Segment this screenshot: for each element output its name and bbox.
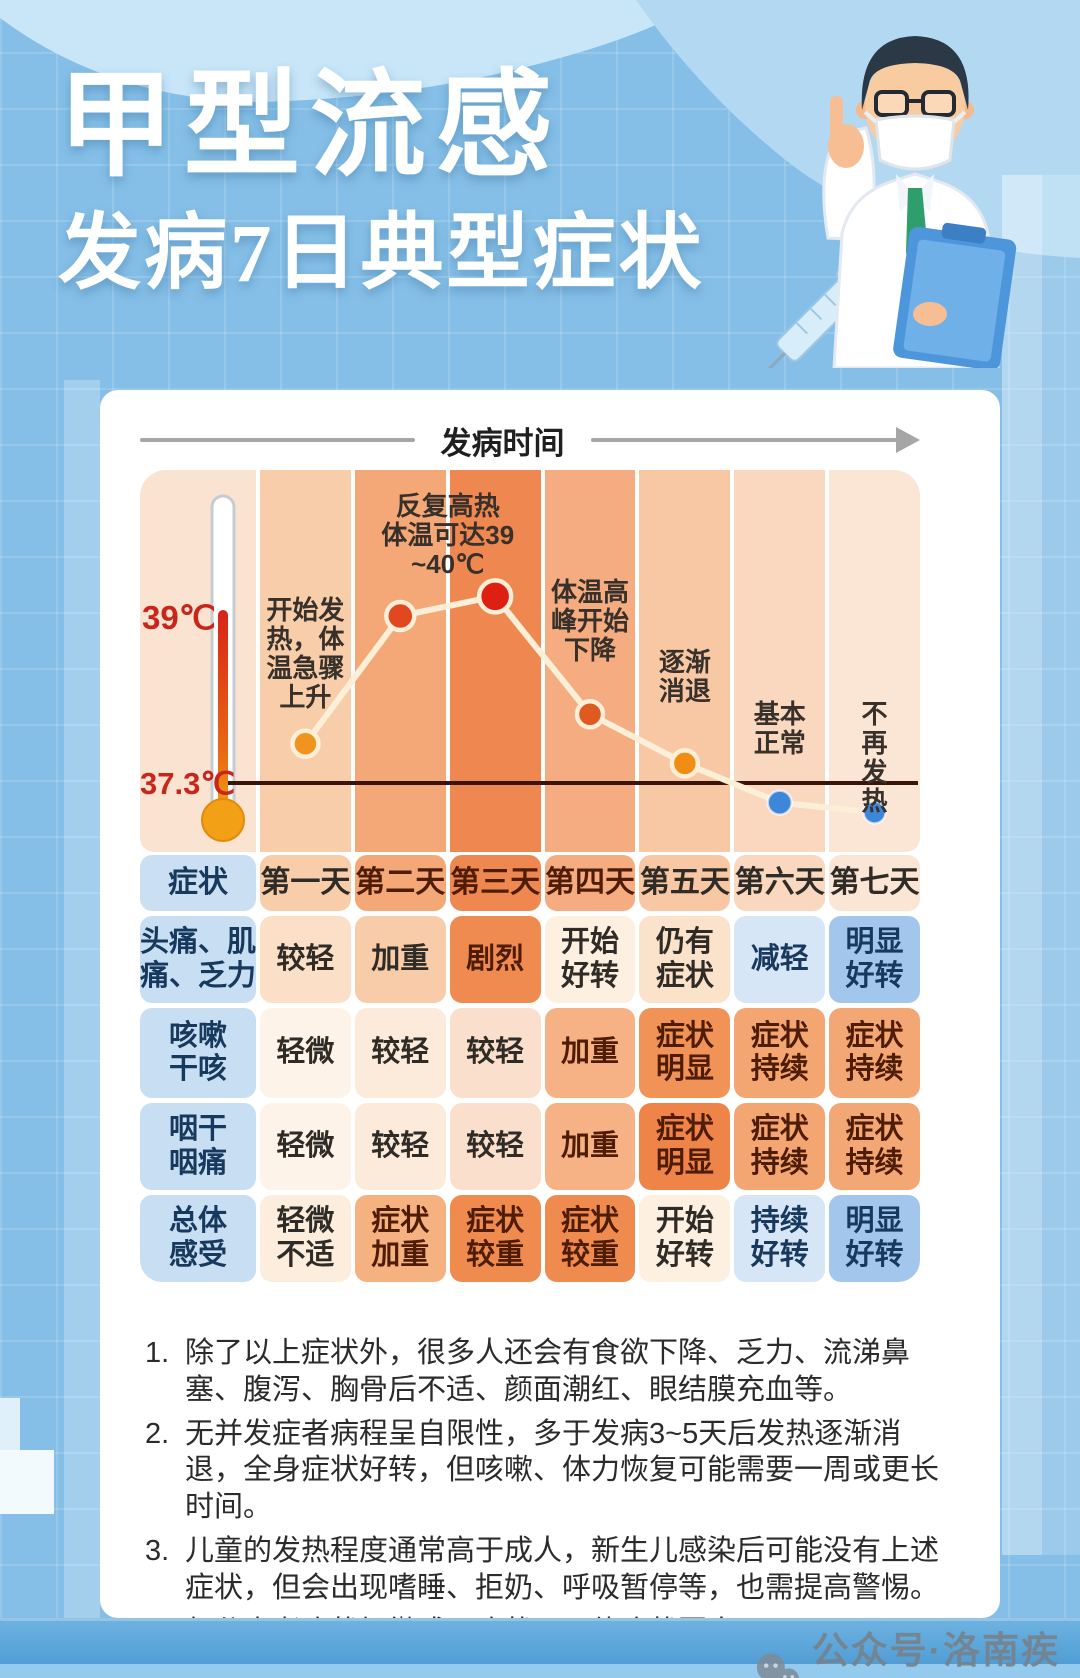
chart-annotation-day-5: 逐渐 消退 <box>659 648 711 706</box>
fever-chart: 开始发 热，体 温急骤 上升反复高热 体温可达39 ~40℃体温高 峰开始 下降… <box>140 470 920 852</box>
symptom-table: 症状第一天第二天第三天第四天第五天第六天第七天头痛、肌 痛、乏力较轻加重剧烈开始… <box>140 855 920 1282</box>
table-cell: 持续 好转 <box>734 1195 825 1282</box>
table-row-label: 总体 感受 <box>140 1195 256 1282</box>
temperature-point-day-4 <box>577 701 603 727</box>
corner-step-decor <box>0 1398 20 1456</box>
footnote-2: 2.无并发症者病程呈自限性，多于发病3~5天后发热逐渐消退，全身症状好转，但咳嗽… <box>145 1416 957 1526</box>
chart-annotation-day-6: 基本 正常 <box>754 700 806 758</box>
left-accent-band <box>64 380 100 1618</box>
timeline-line-right <box>591 438 898 442</box>
table-cell: 症状 持续 <box>734 1103 825 1190</box>
wechat-icon <box>755 1651 802 1678</box>
content-card: 发病时间 <box>100 390 1000 1618</box>
table-cell: 加重 <box>355 916 446 1003</box>
table-cell: 症状 持续 <box>829 1103 920 1190</box>
watermark-text: 公众号·洛南疾控 <box>812 1620 1080 1678</box>
table-header-symptom: 症状 <box>140 855 256 911</box>
influenza-infographic-page: 甲型流感 发病7日典型症状 <box>0 0 1080 1678</box>
footnotes: 1.除了以上症状外，很多人还会有食欲下降、乏力、流涕鼻塞、腹泻、胸骨后不适、颜面… <box>145 1335 957 1658</box>
title-line-2: 发病7日典型症状 <box>58 208 705 299</box>
footnote-text: 无并发症者病程呈自限性，多于发病3~5天后发热逐渐消退，全身症状好转，但咳嗽、体… <box>185 1416 957 1526</box>
table-row-label: 咳嗽 干咳 <box>140 1008 256 1098</box>
footnote-number: 3. <box>145 1533 185 1607</box>
table-header-day-2: 第二天 <box>355 855 446 911</box>
table-cell: 明显 好转 <box>829 916 920 1003</box>
chart-annotation-day-1: 开始发 热，体 温急骤 上升 <box>266 596 344 712</box>
temperature-point-day-3 <box>479 580 511 612</box>
normal-temp-label: 37.3℃ <box>140 766 235 802</box>
table-cell: 加重 <box>545 1008 636 1098</box>
table-header-day-6: 第六天 <box>734 855 825 911</box>
footnote-text: 儿童的发热程度通常高于成人，新生儿感染后可能没有上述症状，但会出现嗜睡、拒奶、呼… <box>185 1533 957 1607</box>
doctor-illustration <box>758 8 1080 368</box>
table-cell: 症状 明显 <box>639 1008 730 1098</box>
clipboard-icon <box>892 218 1018 368</box>
corner-step-decor <box>0 1450 54 1514</box>
temperature-point-day-6 <box>768 791 792 815</box>
table-cell: 症状 明显 <box>639 1103 730 1190</box>
table-cell: 仍有 症状 <box>639 916 730 1003</box>
chart-annotation-day-4: 体温高 峰开始 下降 <box>551 578 629 665</box>
table-cell: 症状 持续 <box>734 1008 825 1098</box>
table-cell: 减轻 <box>734 916 825 1003</box>
temperature-point-day-2 <box>386 602 414 630</box>
footnote-3: 3.儿童的发热程度通常高于成人，新生儿感染后可能没有上述症状，但会出现嗜睡、拒奶… <box>145 1533 957 1607</box>
table-header-day-1: 第一天 <box>260 855 351 911</box>
right-accent-band-inner <box>1002 175 1042 1555</box>
timeline-header: 发病时间 <box>140 420 920 460</box>
table-header-day-4: 第四天 <box>545 855 636 911</box>
footnote-number: 1. <box>145 1335 185 1409</box>
page-title: 甲型流感 发病7日典型症状 <box>58 64 705 299</box>
footnote-text: 除了以上症状外，很多人还会有食欲下降、乏力、流涕鼻塞、腹泻、胸骨后不适、颜面潮红… <box>185 1335 957 1409</box>
table-cell: 较轻 <box>260 916 351 1003</box>
holding-hand <box>913 302 947 326</box>
footnote-number: 2. <box>145 1416 185 1526</box>
arrow-right-icon <box>896 427 920 453</box>
watermark: 公众号·洛南疾控 <box>755 1620 1080 1678</box>
table-cell: 加重 <box>545 1103 636 1190</box>
table-header-day-5: 第五天 <box>639 855 730 911</box>
table-row-label: 头痛、肌 痛、乏力 <box>140 916 256 1003</box>
table-header-day-7: 第七天 <box>829 855 920 911</box>
fever-curve-svg <box>140 470 920 852</box>
chart-annotation-day-7: 不再 发热 <box>852 700 897 816</box>
high-temp-label: 39℃ <box>142 598 216 637</box>
table-cell: 症状 加重 <box>355 1195 446 1282</box>
table-cell: 较轻 <box>355 1008 446 1098</box>
table-cell: 开始 好转 <box>545 916 636 1003</box>
doctor-head <box>856 36 974 169</box>
table-cell: 剧烈 <box>450 916 541 1003</box>
face-mask-icon <box>865 112 965 169</box>
table-cell: 较轻 <box>450 1103 541 1190</box>
table-row-label: 咽干 咽痛 <box>140 1103 256 1190</box>
table-cell: 明显 好转 <box>829 1195 920 1282</box>
timeline-label: 发病时间 <box>415 418 591 463</box>
temperature-point-day-5 <box>672 750 698 776</box>
title-line-1: 甲型流感 <box>58 64 705 192</box>
table-cell: 轻微 不适 <box>260 1195 351 1282</box>
table-cell: 症状 较重 <box>545 1195 636 1282</box>
table-cell: 开始 好转 <box>639 1195 730 1282</box>
table-cell: 较轻 <box>355 1103 446 1190</box>
temperature-point-day-1 <box>292 731 318 757</box>
table-cell: 症状 持续 <box>829 1008 920 1098</box>
table-cell: 症状 较重 <box>450 1195 541 1282</box>
table-cell: 轻微 <box>260 1008 351 1098</box>
doctor-body <box>834 174 1018 368</box>
table-header-day-3: 第三天 <box>450 855 541 911</box>
table-cell: 轻微 <box>260 1103 351 1190</box>
chart-annotation-day-2.5: 反复高热 体温可达39 ~40℃ <box>381 492 514 579</box>
footnote-1: 1.除了以上症状外，很多人还会有食欲下降、乏力、流涕鼻塞、腹泻、胸骨后不适、颜面… <box>145 1335 957 1409</box>
timeline-line-left <box>140 438 415 442</box>
table-cell: 较轻 <box>450 1008 541 1098</box>
